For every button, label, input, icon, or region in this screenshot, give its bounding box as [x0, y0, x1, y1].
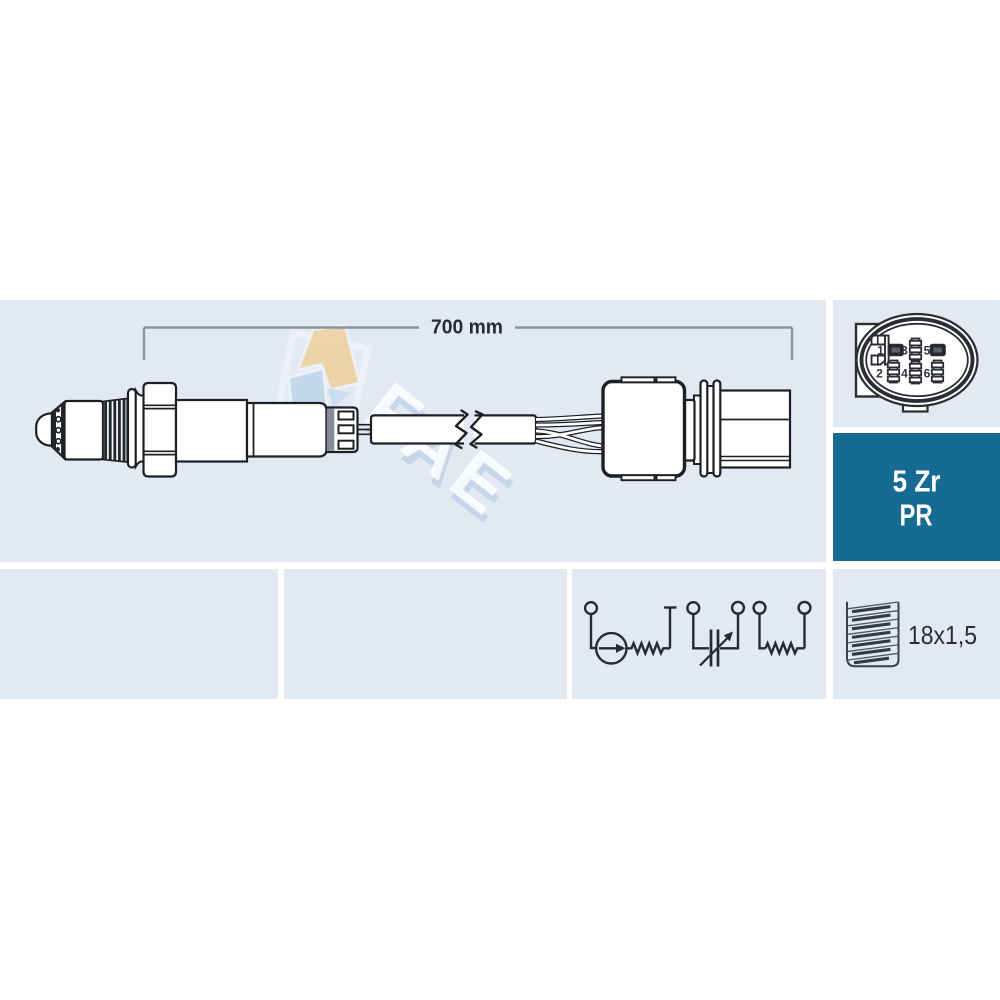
svg-text:5 Zr: 5 Zr	[893, 464, 941, 499]
svg-text:5: 5	[924, 344, 931, 358]
svg-text:1: 1	[877, 344, 884, 358]
svg-text:6: 6	[924, 367, 931, 381]
svg-text:3: 3	[901, 344, 908, 358]
svg-text:4: 4	[901, 367, 908, 381]
svg-text:700 mm: 700 mm	[431, 316, 503, 339]
svg-text:PR: PR	[900, 498, 933, 533]
svg-text:2: 2	[876, 367, 883, 381]
svg-text:18x1,5: 18x1,5	[908, 620, 977, 650]
